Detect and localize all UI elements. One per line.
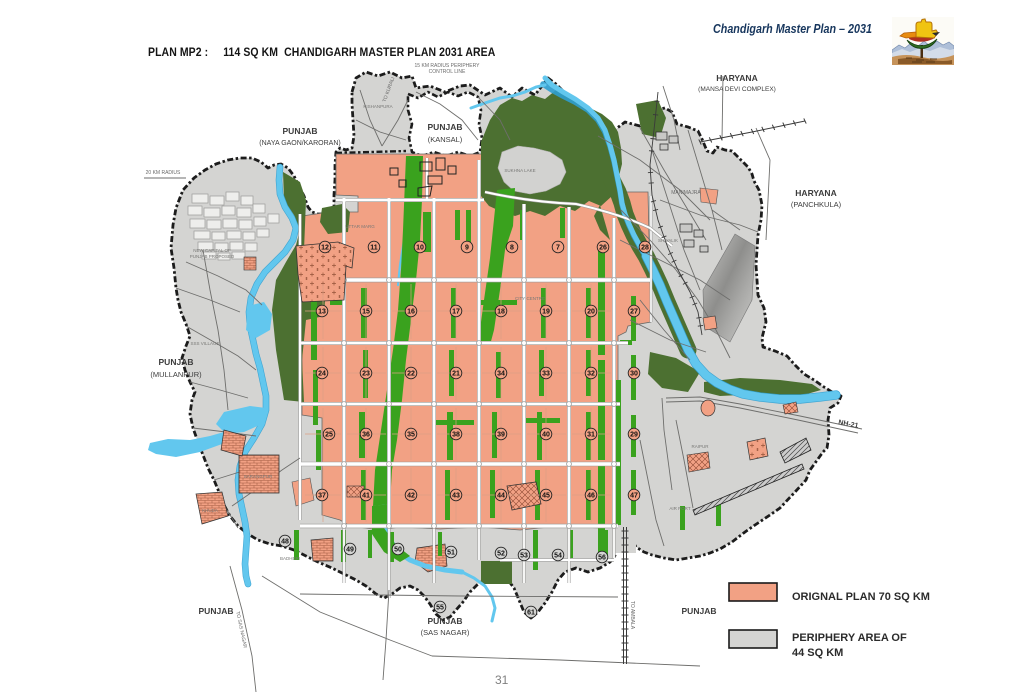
svg-text:30: 30 bbox=[630, 371, 638, 378]
svg-text:61: 61 bbox=[527, 610, 535, 617]
svg-text:(MULLANPUR): (MULLANPUR) bbox=[150, 370, 202, 379]
svg-text:28: 28 bbox=[641, 245, 649, 252]
svg-text:35: 35 bbox=[407, 432, 415, 439]
svg-text:39: 39 bbox=[497, 432, 505, 439]
svg-text:7: 7 bbox=[556, 245, 560, 252]
svg-text:45: 45 bbox=[542, 493, 550, 500]
svg-text:8: 8 bbox=[510, 245, 514, 252]
svg-text:RAIPUR: RAIPUR bbox=[691, 444, 709, 449]
svg-text:PUNJAB PROPOSED: PUNJAB PROPOSED bbox=[190, 254, 235, 259]
svg-text:UTTAR MARG: UTTAR MARG bbox=[345, 224, 375, 229]
svg-text:27: 27 bbox=[630, 309, 638, 316]
svg-text:(MANSA DEVI COMPLEX): (MANSA DEVI COMPLEX) bbox=[698, 86, 776, 93]
svg-text:16: 16 bbox=[407, 309, 415, 316]
svg-text:20: 20 bbox=[587, 309, 595, 316]
svg-text:CONTROL LINE: CONTROL LINE bbox=[429, 69, 466, 75]
svg-text:46: 46 bbox=[587, 493, 595, 500]
svg-text:31: 31 bbox=[587, 432, 595, 439]
svg-text:40: 40 bbox=[542, 432, 550, 439]
svg-text:CITY CENTRE: CITY CENTRE bbox=[515, 296, 545, 301]
svg-text:20 KM RADIUS: 20 KM RADIUS bbox=[146, 170, 181, 176]
svg-text:13: 13 bbox=[318, 309, 326, 316]
svg-text:54: 54 bbox=[554, 553, 562, 560]
svg-text:PUNJAB: PUNJAB bbox=[159, 357, 194, 367]
svg-text:44: 44 bbox=[497, 493, 505, 500]
svg-text:SHIVALIK: SHIVALIK bbox=[658, 238, 678, 243]
svg-text:24: 24 bbox=[318, 371, 326, 378]
svg-text:34: 34 bbox=[497, 371, 505, 378]
svg-text:26: 26 bbox=[599, 245, 607, 252]
svg-text:ORIGNAL PLAN 70 SQ KM: ORIGNAL PLAN 70 SQ KM bbox=[792, 591, 930, 603]
svg-text:10: 10 bbox=[416, 245, 424, 252]
svg-text:55: 55 bbox=[436, 605, 444, 612]
svg-text:44 SQ KM: 44 SQ KM bbox=[792, 647, 843, 659]
svg-text:SSS VILLAGE: SSS VILLAGE bbox=[190, 341, 219, 346]
svg-text:9: 9 bbox=[465, 245, 469, 252]
svg-text:51: 51 bbox=[447, 550, 455, 557]
svg-text:TO AMBALA: TO AMBALA bbox=[629, 601, 635, 630]
svg-text:48: 48 bbox=[281, 539, 289, 546]
svg-text:43: 43 bbox=[452, 493, 460, 500]
svg-text:BADHERI: BADHERI bbox=[280, 556, 300, 561]
svg-text:42: 42 bbox=[407, 493, 415, 500]
svg-text:36: 36 bbox=[362, 432, 370, 439]
svg-text:MANIMAJRA: MANIMAJRA bbox=[671, 190, 701, 196]
svg-text:23: 23 bbox=[362, 371, 370, 378]
svg-text:41: 41 bbox=[362, 493, 370, 500]
svg-text:(PANCHKULA): (PANCHKULA) bbox=[791, 200, 842, 209]
svg-text:PUNJAB: PUNJAB bbox=[428, 616, 463, 626]
svg-text:18: 18 bbox=[497, 309, 505, 316]
svg-text:KHUDA: KHUDA bbox=[202, 508, 218, 513]
svg-text:50: 50 bbox=[394, 547, 402, 554]
svg-text:11: 11 bbox=[370, 245, 378, 252]
svg-text:17: 17 bbox=[452, 309, 460, 316]
svg-text:37: 37 bbox=[318, 493, 326, 500]
svg-text:56: 56 bbox=[598, 555, 606, 562]
svg-text:NH-21: NH-21 bbox=[838, 419, 859, 430]
svg-text:PUNJAB: PUNJAB bbox=[283, 126, 318, 136]
svg-text:(KANSAL): (KANSAL) bbox=[428, 135, 463, 144]
svg-text:(NAYA GAON/KARORAN): (NAYA GAON/KARORAN) bbox=[259, 140, 340, 147]
svg-text:PUNJAB: PUNJAB bbox=[682, 606, 717, 616]
svg-text:49: 49 bbox=[346, 547, 354, 554]
svg-text:22: 22 bbox=[407, 371, 415, 378]
svg-text:PERIPHERY AREA OF: PERIPHERY AREA OF bbox=[792, 632, 907, 644]
svg-text:19: 19 bbox=[542, 309, 550, 316]
svg-text:52: 52 bbox=[497, 551, 505, 558]
svg-text:NEW CAPITAL OF: NEW CAPITAL OF bbox=[193, 248, 231, 253]
svg-text:(SAS NAGAR): (SAS NAGAR) bbox=[421, 628, 470, 637]
svg-text:12: 12 bbox=[321, 245, 329, 252]
svg-text:21: 21 bbox=[452, 371, 460, 378]
svg-text:47: 47 bbox=[630, 493, 638, 500]
svg-text:33: 33 bbox=[542, 371, 550, 378]
svg-text:29: 29 bbox=[630, 432, 638, 439]
svg-text:15: 15 bbox=[362, 309, 370, 316]
svg-text:32: 32 bbox=[587, 371, 595, 378]
svg-text:PUNJAB: PUNJAB bbox=[199, 606, 234, 616]
svg-text:38: 38 bbox=[452, 432, 460, 439]
svg-text:53: 53 bbox=[520, 553, 528, 560]
svg-text:KISHANPURA: KISHANPURA bbox=[363, 104, 392, 109]
svg-text:HARYANA: HARYANA bbox=[716, 73, 757, 83]
svg-text:PUNJAB: PUNJAB bbox=[428, 122, 463, 132]
svg-text:SUKHNA LAKE: SUKHNA LAKE bbox=[504, 168, 535, 173]
svg-text:TO SAS NAGAR: TO SAS NAGAR bbox=[234, 611, 248, 649]
svg-text:HARYANA: HARYANA bbox=[795, 188, 836, 198]
svg-text:AIR PORT: AIR PORT bbox=[669, 506, 690, 511]
svg-text:25: 25 bbox=[325, 432, 333, 439]
svg-text:SARANGPUR: SARANGPUR bbox=[244, 474, 273, 479]
